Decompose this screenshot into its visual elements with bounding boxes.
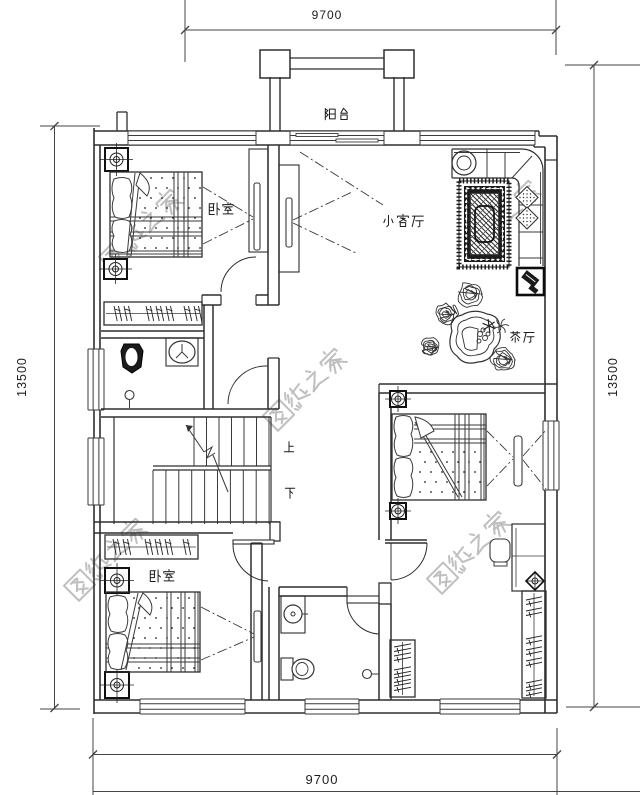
svg-text:13500: 13500 (15, 357, 29, 397)
svg-text:9700: 9700 (306, 772, 339, 787)
svg-text:9700: 9700 (312, 8, 343, 22)
svg-text:13500: 13500 (606, 357, 620, 397)
